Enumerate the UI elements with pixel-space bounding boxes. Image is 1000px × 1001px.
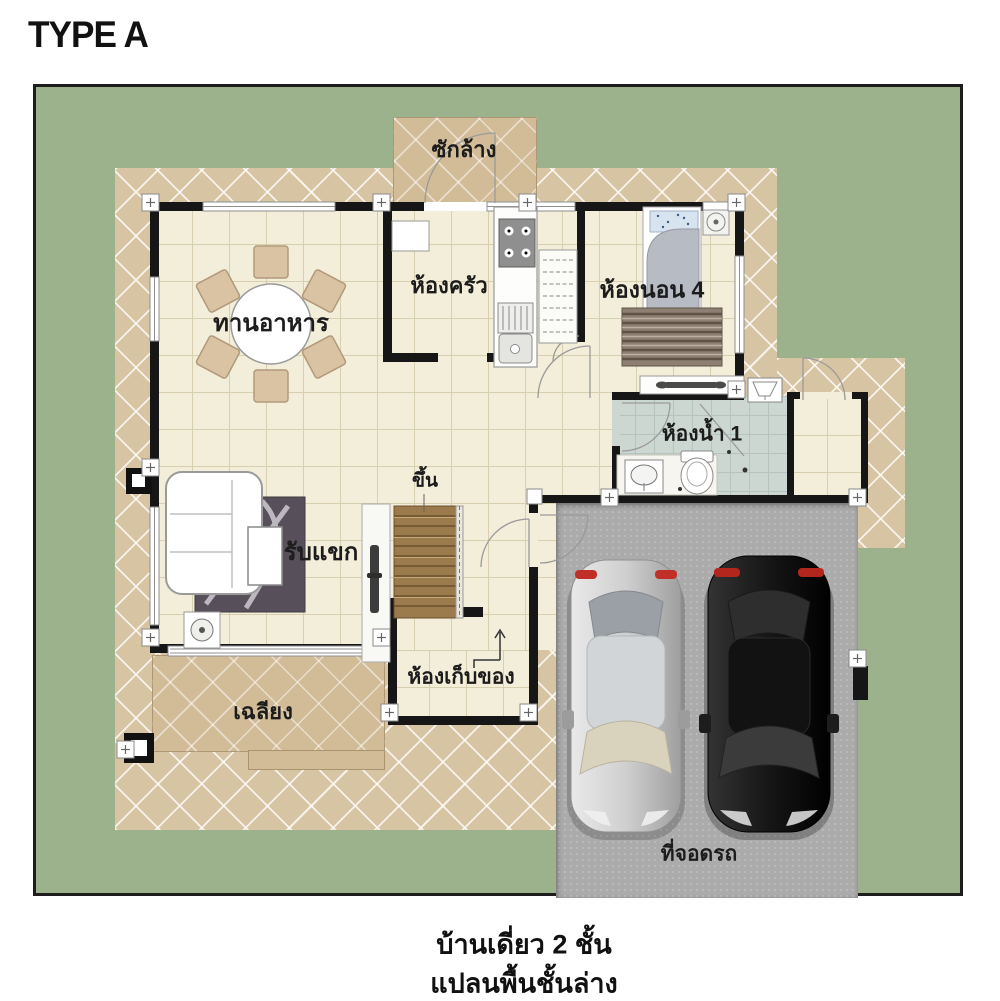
room-label-storage: ห้องเก็บของ (407, 665, 514, 688)
room-label-bathroom1: ห้องน้ำ 1 (662, 422, 742, 445)
room-label-bedroom4: ห้องนอน 4 (600, 277, 705, 302)
room-label-stairs-up: ขึ้น (412, 472, 438, 493)
floor-bathroom (616, 396, 789, 498)
floor-maid-room (790, 398, 863, 495)
carport-slab (556, 503, 858, 898)
porch-step (248, 750, 385, 770)
room-label-laundry: ซักล้าง (432, 138, 497, 162)
page-title: TYPE A (28, 14, 148, 56)
room-label-carport: ที่จอดรถ (661, 842, 737, 865)
room-label-kitchen: ห้องครัว (410, 274, 487, 298)
caption-house-type: บ้านเดี่ยว 2 ชั้น (436, 923, 611, 966)
floor-plan-page: TYPE A (0, 0, 1000, 1001)
room-label-porch: เฉลียง (233, 700, 293, 724)
caption-plan-level: แปลนพื้นชั้นล่าง (430, 962, 617, 1001)
room-label-living: รับแขก (284, 540, 359, 566)
room-label-dining: ทานอาหาร (213, 311, 329, 337)
